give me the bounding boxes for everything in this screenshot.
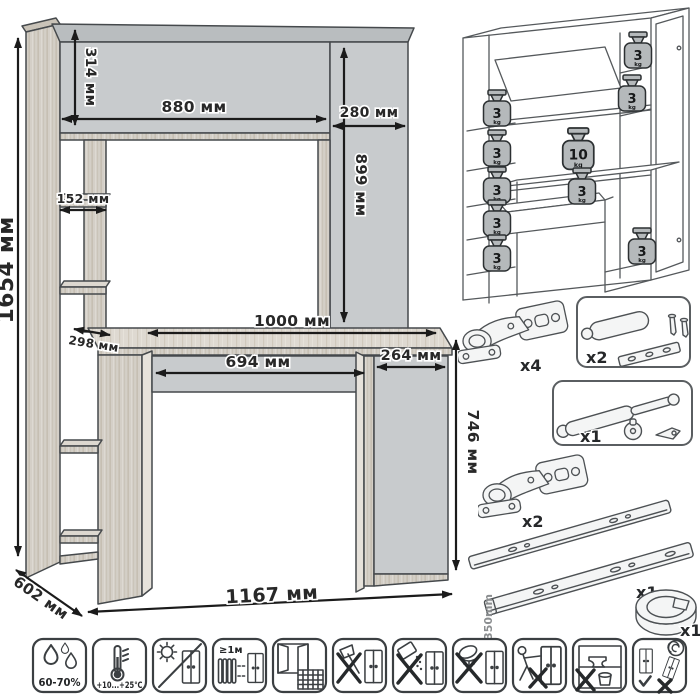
top-panel	[52, 24, 414, 42]
weight-badge: 3 kg	[625, 32, 652, 68]
hardware-list: x4 x2 x1	[440, 295, 700, 638]
left-post	[26, 24, 60, 578]
weight-badge: 3 kg	[484, 90, 511, 126]
no-abrasives-icon	[391, 637, 448, 694]
weight-unit: kg	[493, 160, 501, 166]
no-direct-sunlight-icon	[151, 637, 208, 694]
no-overloading-icon	[571, 637, 628, 694]
weight-badge: 10 kg	[563, 128, 594, 169]
screw-icon	[669, 314, 689, 337]
dim-top-cabinet-width: 280 мм	[340, 105, 399, 121]
hinge-count: x4	[520, 356, 541, 375]
dim-hutch-width: 880 мм	[162, 98, 227, 116]
hinge-icon	[477, 454, 589, 518]
dim-total-height: 1654 мм	[0, 217, 19, 324]
radiator-distance-label: ≥1м	[219, 645, 243, 656]
shelf	[60, 536, 98, 543]
left-leg	[98, 355, 142, 604]
transport-upright-icon	[631, 637, 688, 694]
weight-unit: kg	[628, 105, 636, 111]
humidity-label: 60-70%	[39, 677, 81, 689]
pedestal-door	[374, 356, 448, 574]
dim-total-width: 1167 мм	[225, 582, 319, 609]
care-icons-row: 60-70% +10...+25°C ≥1м	[31, 637, 691, 695]
slide-length-label: 350mm	[482, 594, 495, 640]
no-impacts-icon	[331, 637, 388, 694]
shelf	[60, 287, 106, 294]
weight-badge: 3 kg	[484, 235, 511, 271]
hinge-count: x2	[522, 512, 543, 531]
hinge-icon	[457, 300, 569, 364]
load-limit-drawing: 3 kg 3 kg 3 kg 3 kg 3	[455, 0, 700, 312]
gas-lift-icon	[555, 391, 680, 439]
weight-unit: kg	[493, 265, 501, 271]
temperature-label: +10...+25°C	[97, 681, 143, 691]
dim-desktop-width: 1000 мм	[254, 312, 330, 330]
no-solvents-icon	[451, 637, 508, 694]
weight-unit: kg	[578, 198, 586, 204]
weight-unit: kg	[634, 62, 642, 68]
inner-left-panel	[84, 140, 106, 332]
gas-lift-count: x1	[580, 427, 601, 446]
weight-badge: 3 kg	[484, 167, 511, 203]
dim-depth: 602 мм	[10, 573, 72, 624]
damper-count: x2	[586, 348, 607, 367]
dim-drawer-width: 694 мм	[226, 353, 291, 371]
temperature-icon: +10...+25°C	[91, 637, 148, 694]
dim-hutch-height: 314 мм	[82, 48, 98, 107]
dim-shelf-width: 152 мм	[57, 191, 110, 206]
shelf	[60, 446, 98, 453]
weight-unit: kg	[493, 120, 501, 126]
furniture-dimension-sheet: 1654 мм 314 мм 880 мм 280 мм 899 мм 152 …	[0, 0, 700, 698]
weight-badge: 3 kg	[484, 130, 511, 166]
weight-badge: 3 kg	[619, 75, 646, 111]
dimension-drawing: 1654 мм 314 мм 880 мм 280 мм 899 мм 152 …	[0, 0, 480, 635]
weight-unit: kg	[638, 258, 646, 264]
humidity-icon: 60-70%	[31, 637, 88, 694]
dim-pedestal-width: 264 мм	[381, 348, 442, 364]
desktop	[88, 328, 452, 348]
radiator-distance-icon: ≥1м	[211, 637, 268, 694]
dim-top-cabinet-height: 899 мм	[352, 154, 370, 217]
ventilate-room-icon	[271, 637, 328, 694]
no-dragging-icon	[511, 637, 568, 694]
